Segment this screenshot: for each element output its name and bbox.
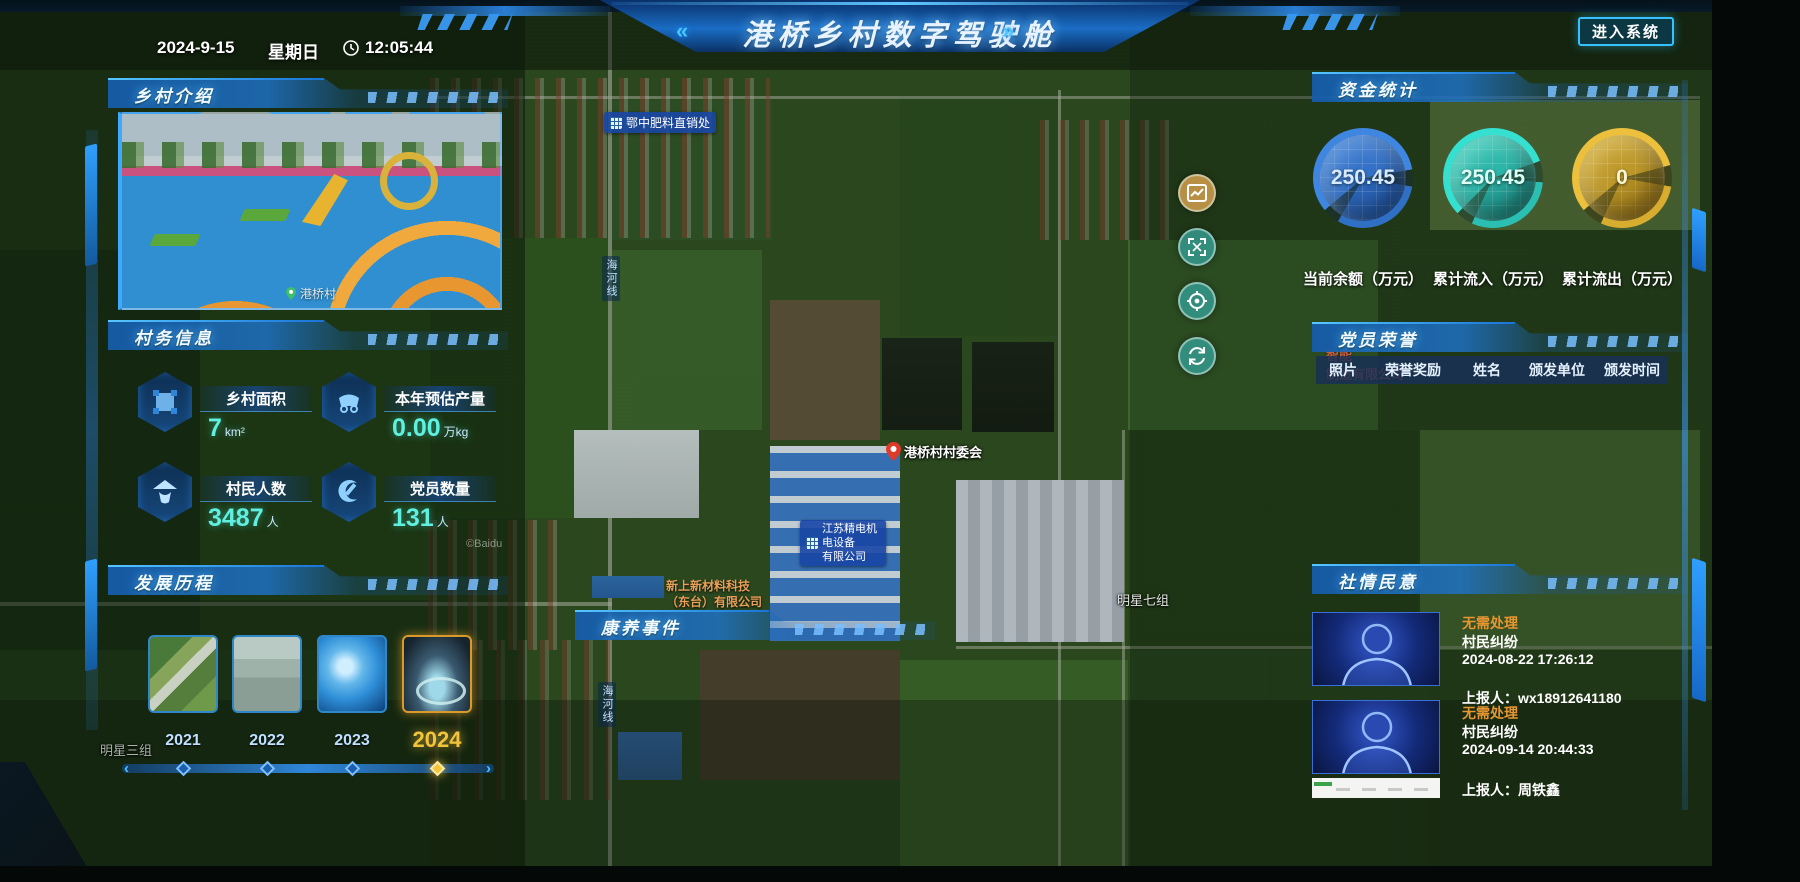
map-chart-button[interactable] — [1178, 174, 1216, 212]
photo-ring-sculpture — [380, 152, 438, 210]
header-weekday: 星期日 — [268, 38, 319, 63]
map-fullscreen-button[interactable] — [1178, 228, 1216, 266]
panel-title: 乡村介绍 — [134, 82, 214, 107]
right-frame-segment — [1692, 558, 1706, 703]
map-poi-village-committee[interactable]: 港桥村村委会 — [886, 442, 982, 461]
sentiment-category: 村民纠纷 — [1462, 722, 1518, 742]
header-stripes-deco — [368, 92, 498, 103]
panel-title: 发展历程 — [134, 569, 214, 594]
green-pin-icon — [286, 287, 296, 300]
development-thumb-2024[interactable] — [402, 635, 472, 713]
stat-value: 0.00万kg — [392, 414, 468, 443]
header-right-deco-slashes — [1282, 14, 1377, 30]
party-icon — [322, 462, 376, 522]
stat-value: 7km² — [208, 414, 245, 443]
person-hologram-icon — [1313, 701, 1440, 774]
photo-bench — [239, 209, 290, 221]
clock-icon — [343, 40, 359, 56]
column-header-photo: 照片 — [1316, 360, 1370, 380]
shop-icon — [610, 117, 622, 129]
header-date: 2024-9-15 — [157, 38, 235, 58]
party-honor-table-header: 照片 荣誉奖励 姓名 颁发单位 颁发时间 — [1316, 356, 1668, 384]
factory-icon — [806, 537, 818, 549]
area-icon — [138, 372, 192, 432]
map-poi-material-company[interactable]: 新上新材料科技 （东台）有限公司 — [666, 578, 762, 610]
red-pin-icon — [886, 442, 901, 461]
person-hologram-icon — [1313, 613, 1440, 686]
column-header-date: 颁发时间 — [1596, 360, 1668, 380]
stat-label: 村民人数 — [200, 476, 312, 502]
chart-icon — [1187, 184, 1207, 202]
panel-title: 社情民意 — [1338, 568, 1418, 593]
sentiment-status: 无需处理 — [1462, 703, 1518, 723]
timeline-next-arrow[interactable]: › — [486, 760, 491, 777]
map-label-mingxing7: 明星七组 — [1117, 590, 1169, 609]
right-frame-line — [1682, 80, 1688, 810]
photo-trees — [122, 142, 500, 168]
map-road-label-bottom: 海河线 — [598, 682, 616, 727]
locate-icon — [1187, 291, 1207, 311]
dashboard: 鄂中肥料直销处 港桥村村委会 江苏精电机电设备有限公司 新上新材料科技 （东台）… — [0, 0, 1800, 882]
stat-label: 党员数量 — [384, 476, 496, 502]
photo-caption: 港桥村 — [122, 285, 500, 302]
title-right-wing — [1190, 6, 1400, 16]
title-left-wing — [400, 6, 610, 16]
refresh-icon — [1187, 346, 1207, 366]
gauge-sphere: 250.45 — [1320, 135, 1406, 221]
gauge-label-inflow: 累计流入（万元） — [1428, 268, 1558, 289]
cart-icon — [322, 372, 376, 432]
farmer-icon — [138, 462, 192, 522]
stat-villager-count: 村民人数 3487人 — [138, 460, 326, 540]
map-poi-js-company[interactable]: 江苏精电机电设备有限公司 — [800, 520, 886, 566]
column-header-name: 姓名 — [1456, 360, 1518, 380]
sentiment-screenshot-thumb[interactable] — [1312, 778, 1440, 798]
gauge-sphere: 250.45 — [1450, 135, 1536, 221]
year-2021[interactable]: 2021 — [148, 732, 218, 750]
photo-bench — [149, 234, 200, 246]
sentiment-time: 2024-09-14 20:44:33 — [1462, 741, 1594, 757]
development-thumb-2023[interactable] — [317, 635, 387, 713]
right-letterbox — [1712, 0, 1800, 882]
stat-village-area: 乡村面积 7km² — [138, 370, 326, 450]
page-title: 港桥乡村数字驾驶舱 — [600, 12, 1200, 54]
panel-title: 资金统计 — [1338, 76, 1418, 101]
header-time: 12:05:44 — [365, 38, 433, 58]
header-stripes-deco — [1548, 336, 1678, 347]
left-frame-segment — [85, 144, 97, 267]
header-stripes-deco — [795, 624, 925, 635]
gauge-label-outflow: 累计流出（万元） — [1557, 268, 1687, 289]
right-frame-segment — [1692, 208, 1706, 273]
year-2022[interactable]: 2022 — [232, 732, 302, 750]
bottom-frame-strip — [0, 866, 1800, 882]
gauge-value: 250.45 — [1461, 166, 1525, 190]
development-thumb-2022[interactable] — [232, 635, 302, 713]
gauge-value: 0 — [1616, 166, 1628, 190]
header-stripes-deco — [368, 334, 498, 345]
year-2024[interactable]: 2024 — [402, 727, 472, 753]
header-left-deco-slashes — [417, 14, 512, 30]
gauge-label-balance: 当前余额（万元） — [1298, 268, 1428, 289]
map-poi-fertilizer-shop[interactable]: 鄂中肥料直销处 — [604, 112, 716, 133]
header-stripes-deco — [1548, 578, 1678, 589]
column-header-issuer: 颁发单位 — [1518, 360, 1596, 380]
header-stripes-deco — [1548, 86, 1678, 97]
sentiment-reporter: 上报人：周铁鑫 — [1462, 780, 1560, 800]
gauge-value: 250.45 — [1331, 166, 1395, 190]
gauge-current-balance: 250.45 — [1313, 128, 1413, 228]
sentiment-avatar[interactable] — [1312, 700, 1440, 774]
title-left-chevrons: « — [676, 18, 688, 44]
enter-system-button[interactable]: 进入系统 — [1578, 17, 1674, 46]
panel-title: 康养事件 — [601, 614, 681, 639]
stat-label: 本年预估产量 — [384, 386, 496, 412]
gauge-sphere: 0 — [1579, 135, 1665, 221]
poi-label: 江苏精电机电设备有限公司 — [822, 522, 880, 564]
title-right-chevrons: » — [1002, 18, 1014, 44]
village-photo[interactable]: 港桥村 — [118, 112, 502, 310]
gauge-total-outflow: 0 — [1572, 128, 1672, 228]
photo-slide — [302, 174, 348, 226]
stat-label: 乡村面积 — [200, 386, 312, 412]
gauge-total-inflow: 250.45 — [1443, 128, 1543, 228]
sentiment-category: 村民纠纷 — [1462, 632, 1518, 652]
stat-party-member-count: 党员数量 131人 — [322, 460, 510, 540]
map-road-label-top: 海河线 — [602, 256, 620, 301]
panel-title: 党员荣誉 — [1338, 326, 1418, 351]
map-label-mingxing3: 明星三组 — [100, 740, 152, 759]
sentiment-status: 无需处理 — [1462, 613, 1518, 633]
development-thumb-2021[interactable] — [148, 635, 218, 713]
stat-value: 131人 — [392, 504, 449, 533]
poi-label: 港桥村村委会 — [904, 442, 982, 461]
left-frame-segment — [85, 559, 97, 672]
map-refresh-button[interactable] — [1178, 337, 1216, 375]
header-stripes-deco — [368, 579, 498, 590]
year-2023[interactable]: 2023 — [317, 732, 387, 750]
panel-title: 村务信息 — [134, 324, 214, 349]
poi-label: 鄂中肥料直销处 — [626, 114, 710, 131]
column-header-award: 荣誉奖励 — [1370, 360, 1456, 380]
map-locate-button[interactable] — [1178, 282, 1216, 320]
fullscreen-icon — [1188, 238, 1206, 256]
sentiment-avatar[interactable] — [1312, 612, 1440, 686]
timeline-prev-arrow[interactable]: ‹ — [124, 760, 129, 777]
stat-value: 3487人 — [208, 504, 279, 533]
stat-estimated-yield: 本年预估产量 0.00万kg — [322, 370, 510, 450]
sentiment-time: 2024-08-22 17:26:12 — [1462, 651, 1594, 667]
title-banner: 港桥乡村数字驾驶舱 — [600, 0, 1200, 52]
